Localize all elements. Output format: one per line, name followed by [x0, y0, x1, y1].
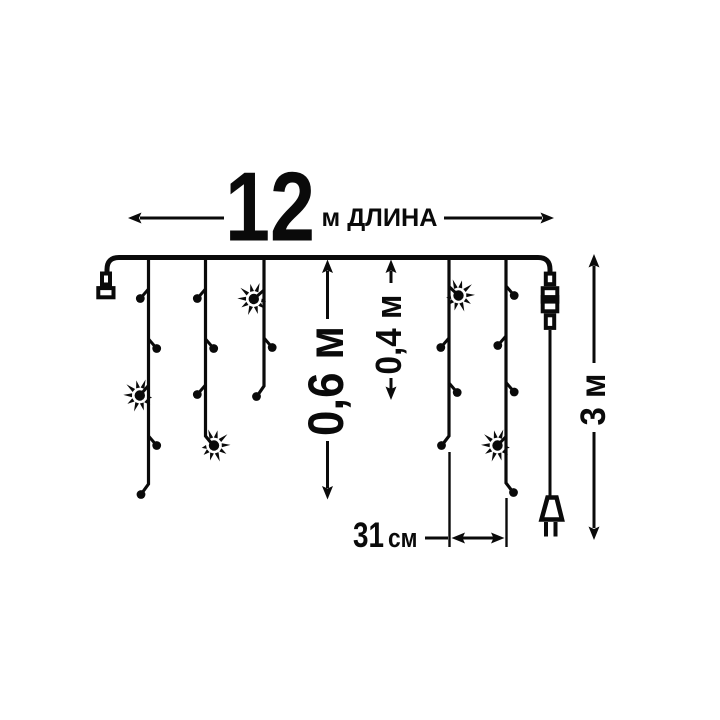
svg-text:12: 12	[225, 152, 315, 262]
svg-text:3 м: 3 м	[574, 374, 613, 426]
svg-text:м ДЛИНА: м ДЛИНА	[322, 204, 438, 232]
svg-text:31: 31	[353, 515, 384, 555]
svg-text:см: см	[388, 523, 418, 553]
svg-text:0,6 м: 0,6 м	[298, 326, 354, 436]
svg-text:0,4 м: 0,4 м	[368, 295, 409, 375]
